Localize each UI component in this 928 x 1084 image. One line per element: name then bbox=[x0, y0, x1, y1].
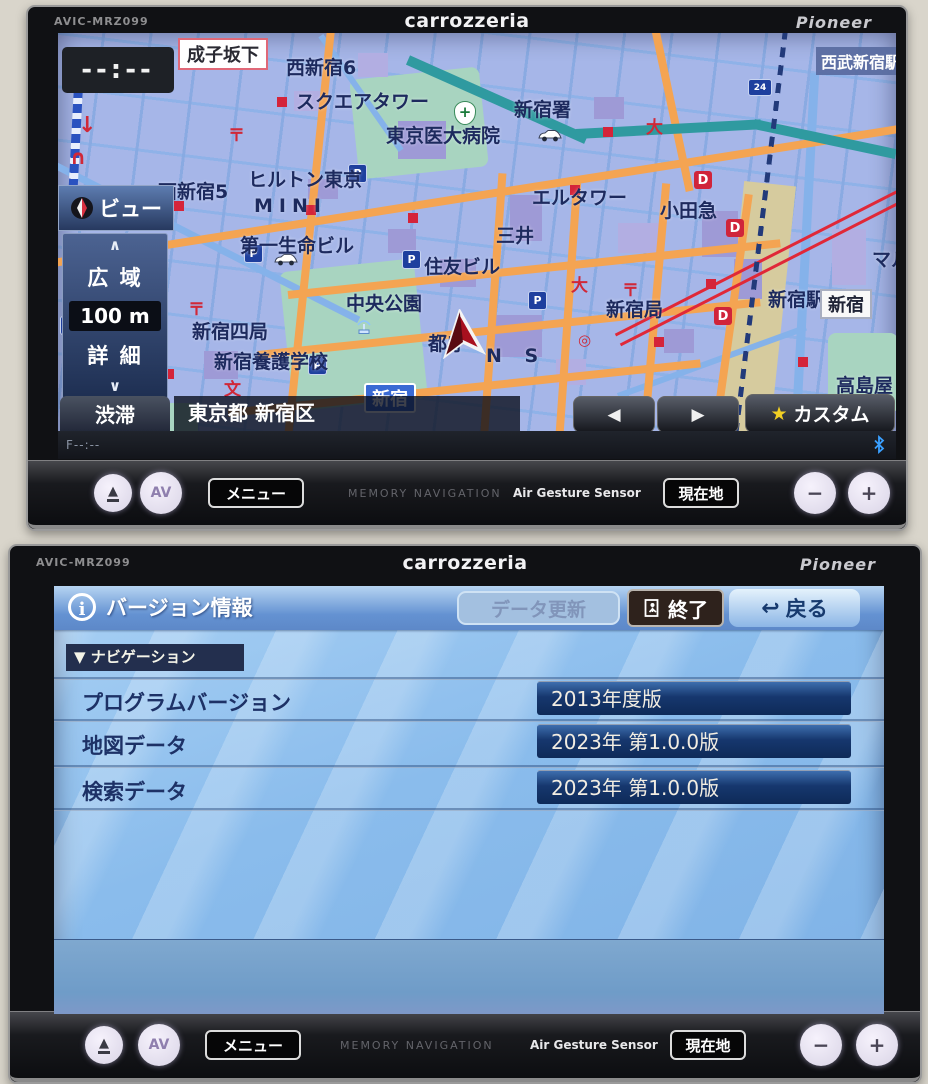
poi-marker bbox=[277, 97, 287, 107]
eject-button[interactable]: ▲ bbox=[94, 474, 132, 512]
view-button-label: ビュー bbox=[99, 193, 162, 223]
map-sign-shinjuku: 新宿 bbox=[820, 289, 872, 319]
menu-button[interactable]: メニュー bbox=[205, 1030, 301, 1060]
building-block bbox=[832, 229, 866, 285]
department-store-icon: D bbox=[714, 307, 732, 325]
building-block bbox=[618, 223, 660, 253]
traffic-arch-icon: ∩ bbox=[70, 145, 86, 169]
compass-icon bbox=[70, 196, 94, 220]
poi-marker bbox=[654, 337, 664, 347]
next-button[interactable]: ▶ bbox=[657, 396, 739, 433]
map-sign-seibu: 西武新宿駅 bbox=[816, 47, 896, 75]
scale-value: 100 m bbox=[69, 301, 161, 331]
row-value-map-data: 2023年 第1.0.0版 bbox=[537, 724, 851, 758]
map-label: 小田急 bbox=[660, 196, 717, 223]
page-title: バージョン情報 bbox=[106, 586, 253, 630]
bezel-top: AVIC-MRZ099 carrozzeria Pioneer bbox=[10, 546, 920, 578]
map-label: 第一生命ビル bbox=[240, 231, 354, 258]
clock-display: --:-- bbox=[62, 47, 174, 93]
large-mark-icon: 大 bbox=[646, 113, 663, 138]
row-value-program-version: 2013年度版 bbox=[537, 681, 851, 715]
map-label: 新宿養護学校 bbox=[214, 347, 328, 374]
row-label-program-version: プログラムバージョン bbox=[82, 687, 291, 717]
large-mark-icon: 大 bbox=[571, 271, 588, 296]
row-label-map-data: 地図データ bbox=[82, 730, 187, 760]
eject-icon: ▲ bbox=[108, 485, 118, 498]
traffic-down-arrow-icon: ↓ bbox=[78, 113, 96, 138]
carrozzeria-logo: carrozzeria bbox=[10, 552, 920, 574]
current-location-bar: 東京都 新宿区 bbox=[174, 396, 520, 431]
fm-status: F--:-- bbox=[66, 438, 100, 452]
prev-button[interactable]: ◀ bbox=[573, 396, 655, 433]
post-office-icon: 〒 bbox=[228, 121, 245, 146]
poi-marker bbox=[706, 279, 716, 289]
map-label: ヒルトン東京 bbox=[248, 165, 362, 192]
divider bbox=[54, 719, 884, 722]
current-location-button[interactable]: 現在地 bbox=[670, 1030, 746, 1060]
bluetooth-icon bbox=[872, 435, 886, 454]
av-button[interactable]: AV bbox=[140, 472, 182, 514]
hardware-bar-top: ▲ AV メニュー MEMORY NAVIGATION Air Gesture … bbox=[28, 460, 906, 529]
volume-up-button[interactable]: + bbox=[856, 1024, 898, 1066]
back-button-label: 戻る bbox=[786, 593, 828, 623]
memory-navigation-label: MEMORY NAVIGATION bbox=[348, 487, 502, 500]
poi-marker bbox=[174, 201, 184, 211]
menu-button[interactable]: メニュー bbox=[208, 478, 304, 508]
custom-button-label: カスタム bbox=[794, 400, 870, 427]
divider bbox=[54, 765, 884, 768]
poi-marker bbox=[408, 213, 418, 223]
department-store-icon: D bbox=[694, 171, 712, 189]
eject-button[interactable]: ▲ bbox=[85, 1026, 123, 1064]
map-label: 住友ビル bbox=[424, 252, 500, 279]
av-button[interactable]: AV bbox=[138, 1024, 180, 1066]
building-block bbox=[358, 53, 388, 77]
map-label: スクエアタワー bbox=[296, 87, 429, 114]
current-location-button[interactable]: 現在地 bbox=[663, 478, 739, 508]
department-store-icon: D bbox=[726, 219, 744, 237]
post-office-icon: 〒 bbox=[188, 295, 205, 320]
air-gesture-label: Air Gesture Sensor bbox=[530, 1038, 658, 1052]
section-navigation-label: ▼ ナビゲーション bbox=[66, 644, 244, 671]
volume-down-button[interactable]: − bbox=[794, 472, 836, 514]
map-label: N S bbox=[486, 345, 546, 367]
exit-button-label: 終了 bbox=[668, 594, 708, 623]
traffic-button[interactable]: 渋滞 bbox=[60, 396, 170, 431]
scale-panel: ∧ 広 域 100 m 詳 細 ∨ bbox=[62, 233, 168, 399]
parking-icon: P bbox=[402, 250, 421, 269]
exit-button[interactable]: 終了 bbox=[627, 589, 724, 627]
fire-station-icon: ◎ bbox=[578, 331, 591, 349]
volume-up-button[interactable]: + bbox=[848, 472, 890, 514]
nav-unit-top: AVIC-MRZ099 carrozzeria Pioneer bbox=[26, 5, 908, 531]
map-label: マル bbox=[872, 245, 896, 272]
map-label: 新宿四局 bbox=[192, 317, 268, 344]
info-icon: i bbox=[68, 593, 96, 621]
title-bar: i バージョン情報 データ更新 終了 ↩ 戻る bbox=[54, 586, 884, 630]
map-label: 新宿駅 bbox=[768, 285, 825, 312]
hardware-bar-bottom: ▲ AV メニュー MEMORY NAVIGATION Air Gesture … bbox=[10, 1011, 920, 1082]
building-block bbox=[664, 329, 694, 353]
volume-down-button[interactable]: − bbox=[800, 1024, 842, 1066]
nav-unit-bottom: AVIC-MRZ099 carrozzeria Pioneer i バージョン情… bbox=[8, 544, 922, 1084]
row-value-search-data: 2023年 第1.0.0版 bbox=[537, 770, 851, 804]
scale-down-icon[interactable]: ∨ bbox=[109, 379, 121, 394]
scale-up-icon[interactable]: ∧ bbox=[109, 238, 121, 253]
status-strip: F--:-- bbox=[58, 431, 896, 459]
map-label: 西新宿6 bbox=[286, 53, 356, 80]
memory-navigation-label: MEMORY NAVIGATION bbox=[340, 1039, 494, 1052]
map-sign-narikozaka: 成子坂下 bbox=[178, 38, 268, 70]
map-label: 中央公園 bbox=[346, 289, 422, 316]
bottom-band bbox=[54, 939, 884, 1014]
row-label-search-data: 検索データ bbox=[82, 776, 187, 806]
map-label: 東京医大病院 bbox=[386, 121, 500, 148]
poi-marker bbox=[603, 127, 613, 137]
divider bbox=[54, 677, 884, 680]
eject-icon: ▲ bbox=[99, 1037, 109, 1050]
air-gesture-label: Air Gesture Sensor bbox=[513, 486, 641, 500]
divider bbox=[54, 808, 884, 811]
police-car-icon bbox=[538, 129, 562, 142]
map-label: 新宿署 bbox=[514, 95, 571, 122]
bezel-top: AVIC-MRZ099 carrozzeria Pioneer bbox=[28, 7, 906, 35]
zoom-in-button[interactable]: 詳 細 bbox=[87, 340, 142, 370]
zoom-out-button[interactable]: 広 域 bbox=[87, 262, 142, 292]
carrozzeria-logo: carrozzeria bbox=[28, 10, 906, 32]
building-block bbox=[594, 97, 624, 119]
back-arrow-icon: ↩ bbox=[761, 596, 779, 621]
fountain-icon bbox=[356, 317, 372, 335]
map-label: エルタワー bbox=[532, 183, 627, 210]
parking-24h-icon: 24 bbox=[748, 79, 772, 96]
vehicle-position-cursor bbox=[436, 307, 489, 360]
exit-door-icon bbox=[643, 598, 663, 618]
version-info-screen: i バージョン情報 データ更新 終了 ↩ 戻る ▼ ナビゲーション プログラムバ… bbox=[54, 586, 884, 1014]
back-button[interactable]: ↩ 戻る bbox=[729, 589, 860, 627]
pioneer-logo: Pioneer bbox=[800, 555, 876, 574]
photo-background: AVIC-MRZ099 carrozzeria Pioneer bbox=[0, 0, 928, 1080]
custom-button[interactable]: ★ カスタム bbox=[745, 394, 895, 433]
pioneer-logo: Pioneer bbox=[796, 13, 872, 32]
map-label: 三井 bbox=[496, 221, 534, 248]
poi-marker bbox=[798, 357, 808, 367]
data-update-button[interactable]: データ更新 bbox=[457, 591, 620, 625]
parking-icon: P bbox=[528, 291, 547, 310]
view-button[interactable]: ビュー bbox=[58, 185, 174, 231]
map-label: MINI bbox=[254, 195, 327, 217]
map-screen[interactable]: 成子坂下 西新宿6 本町1 スクエアタワー 新宿署 東京医大病院 西武新宿駅 ヒ… bbox=[58, 33, 896, 459]
star-icon: ★ bbox=[770, 403, 787, 425]
post-office-icon: 〒 bbox=[622, 276, 639, 301]
